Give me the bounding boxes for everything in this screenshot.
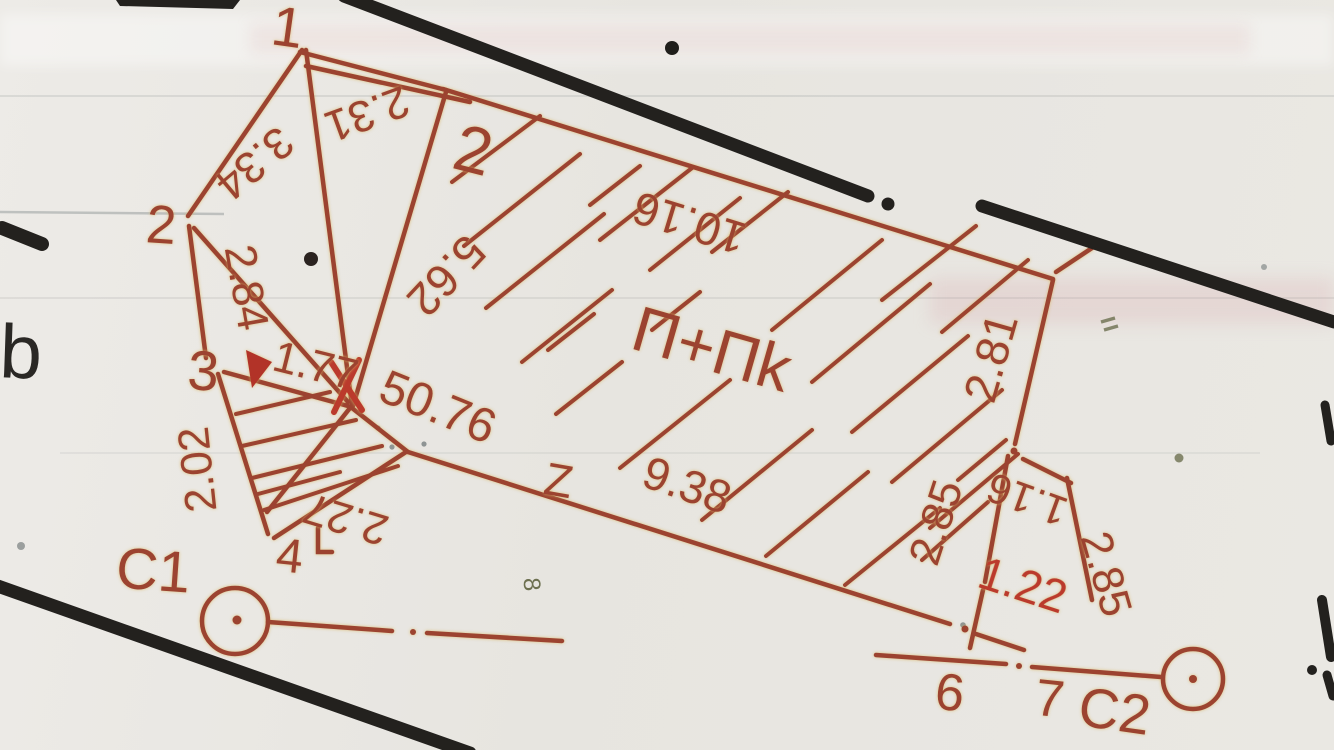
dim-1-22: 1.22: [972, 546, 1073, 623]
c1-baseline: [268, 622, 562, 641]
station-label-c1: C1: [114, 536, 193, 606]
dim-3-34: 3.34: [206, 117, 303, 210]
dim-2-85-right: 2.85: [1071, 526, 1142, 622]
olive-tick: [1104, 326, 1118, 330]
station-center-dot: [233, 616, 242, 625]
edge-top-10-16: [443, 89, 1053, 279]
pencil-speck: [1261, 264, 1267, 270]
station-c1-symbol: [202, 588, 268, 654]
olive-dot: [1175, 454, 1184, 463]
edge-bottom-dash: [976, 634, 1024, 650]
boundary-sliver-top-left: [116, 0, 240, 9]
dim-2-81: 2.81: [953, 307, 1028, 407]
c1-line-dash: [427, 633, 562, 641]
dim-5-62: 5.62: [397, 225, 496, 326]
dim-2-85-left: 2.85: [900, 474, 973, 571]
boundary-dash-bottom-left: [0, 584, 470, 750]
ink-dot: [665, 41, 679, 55]
z-mark-label: Z: [540, 452, 577, 508]
dim-9-38: 9.38: [636, 446, 738, 524]
pencil-dot: [17, 542, 25, 550]
boundary-mark-right: [1322, 600, 1331, 657]
point-label-2-left: 2: [144, 194, 178, 256]
edge-right-2-81: [1015, 280, 1053, 444]
dim-2-02: 2.02: [169, 424, 227, 514]
boundary-dash-left-edge: [2, 228, 42, 244]
olive-tick: [1101, 318, 1115, 322]
station-c2-symbol: [1163, 649, 1223, 709]
dashdot-dot: [1016, 663, 1022, 669]
dashdot-dot: [962, 626, 969, 633]
ink-dot: [304, 252, 318, 266]
boundary-dash-top-right: [982, 206, 1334, 322]
dim-2-84: 2.84: [215, 241, 278, 334]
margin-letter-b: b: [0, 309, 44, 395]
station-center-dot: [1189, 675, 1197, 683]
point-label-4: 4: [274, 529, 306, 585]
dim-2-31: 2.31: [318, 76, 415, 151]
dim-10-16: 10.16: [627, 182, 752, 265]
dim-2-27: 2.27: [298, 483, 394, 555]
point-label-3: 3: [186, 338, 221, 403]
boundary-mark-right: [1325, 405, 1331, 441]
point-label-6: 6: [932, 663, 967, 724]
survey-sketch-photo: { "sketch": { "area_label": "П+Пk", "mar…: [0, 0, 1334, 750]
boundary-mark-right: [1327, 675, 1333, 696]
leader-above-corner: [1056, 248, 1092, 272]
dashdot-dot: [410, 629, 416, 635]
pencil-dot: [389, 444, 394, 449]
pencil-figure8-mark: 8: [517, 577, 545, 593]
pencil-dot: [421, 441, 426, 446]
boundary-dot: [1307, 665, 1317, 675]
point-label-2-top: 2: [447, 109, 501, 190]
c1-line: [268, 622, 392, 631]
point-label-7: 7: [1032, 669, 1067, 730]
landuse-label: П+Пk: [625, 292, 801, 406]
line-to-6: [970, 590, 983, 648]
station-label-c2: C2: [1075, 675, 1155, 747]
cadastral-sketch: 8: [0, 0, 1334, 750]
boundary-dot: [882, 198, 895, 211]
